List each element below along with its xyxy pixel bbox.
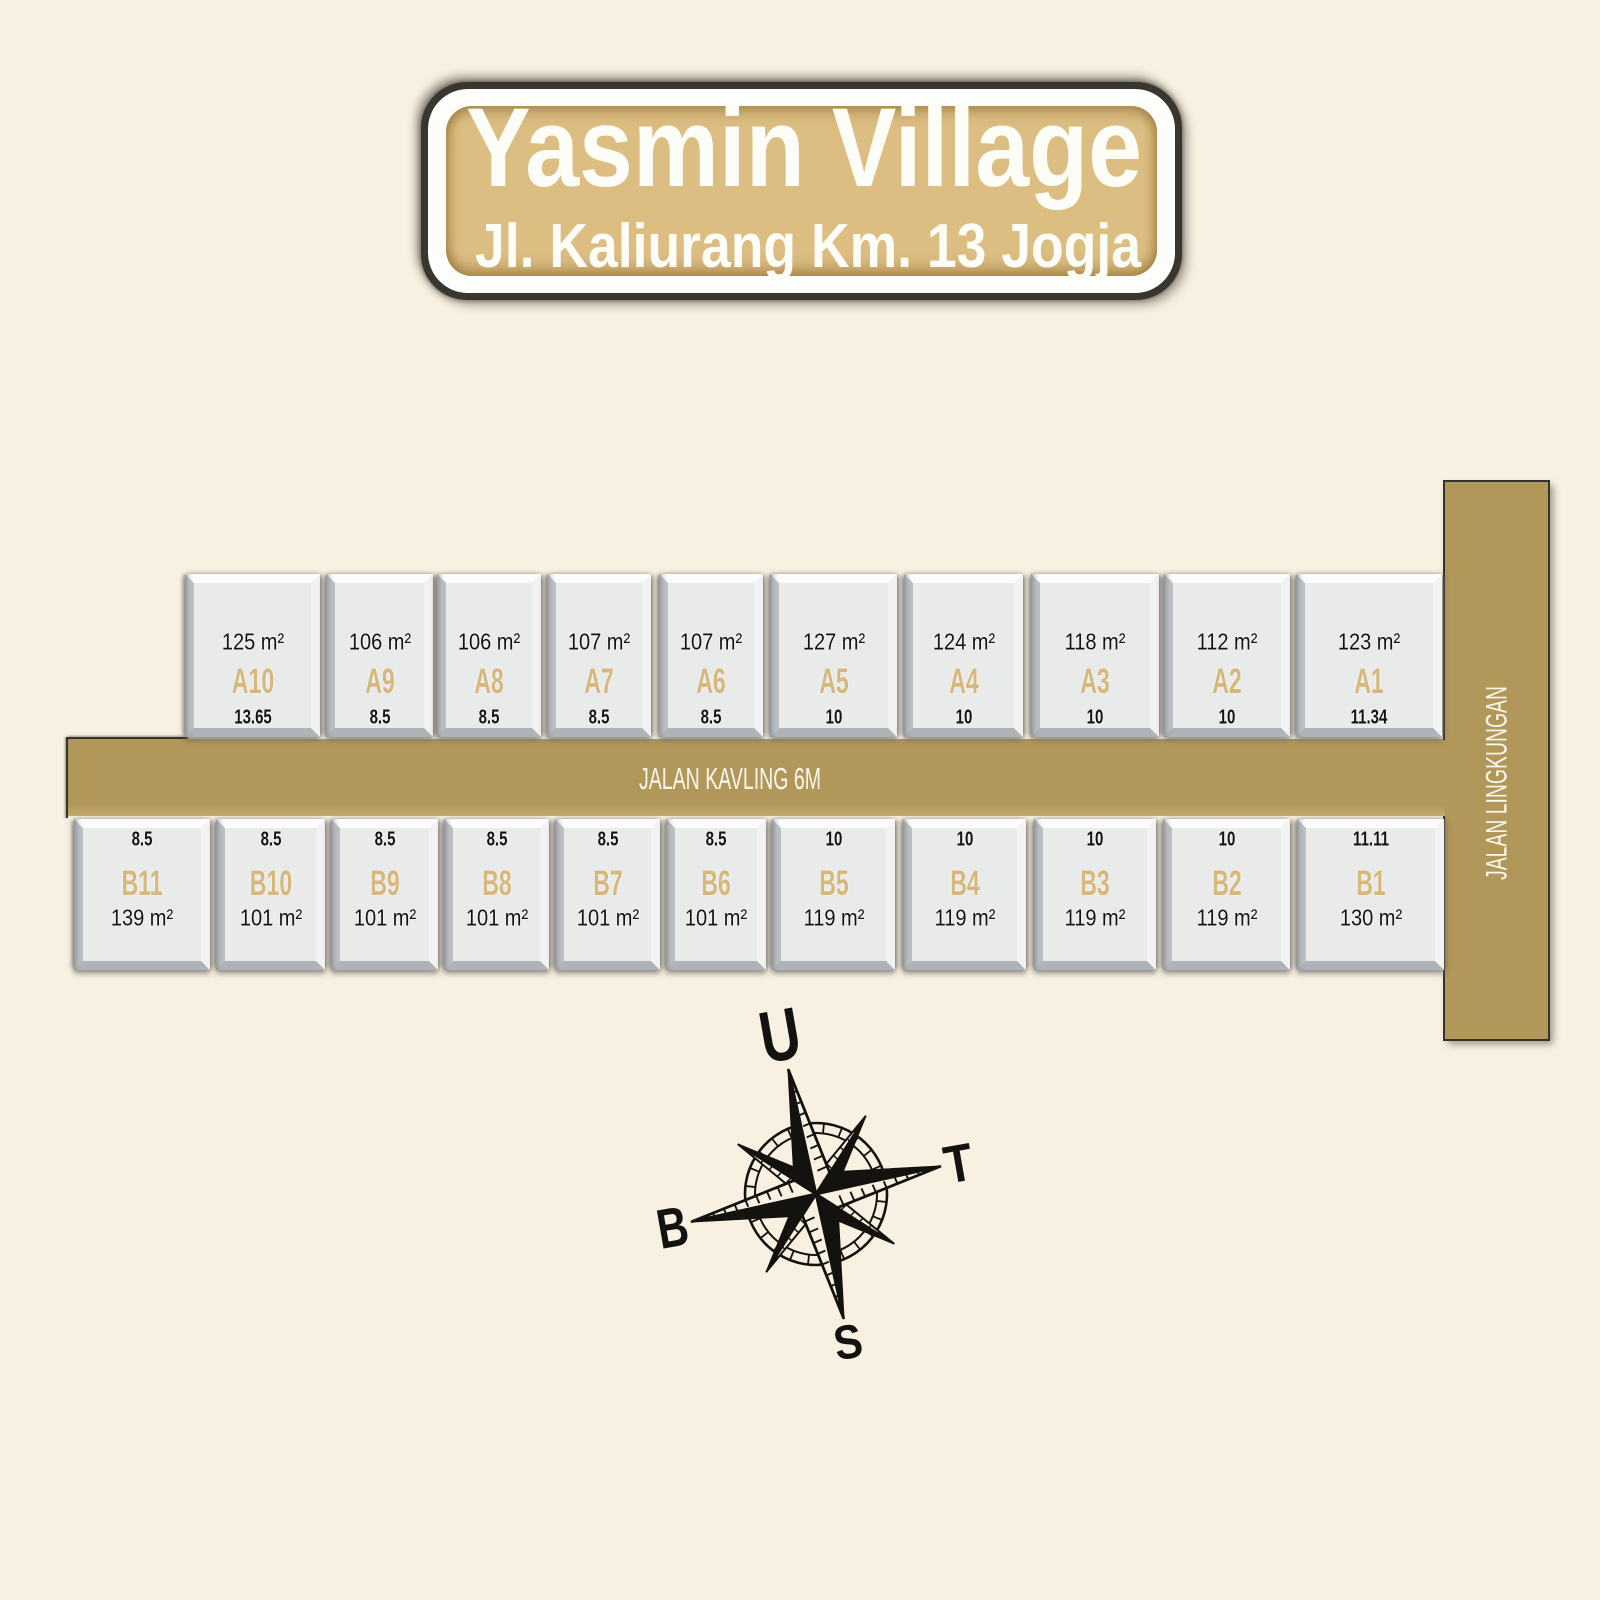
svg-text:U: U [753, 991, 807, 1079]
svg-text:JALAN KAVLING 6M: JALAN KAVLING 6M [639, 762, 821, 796]
svg-text:Yasmin Village: Yasmin Village [466, 85, 1142, 210]
svg-text:S: S [829, 1313, 866, 1371]
svg-text:B: B [652, 1194, 693, 1261]
svg-text:JALAN LINGKUNGAN: JALAN LINGKUNGAN [1481, 686, 1514, 880]
svg-text:T: T [939, 1132, 977, 1195]
svg-text:Jl. Kaliurang Km. 13 Jogja: Jl. Kaliurang Km. 13 Jogja [475, 212, 1141, 281]
